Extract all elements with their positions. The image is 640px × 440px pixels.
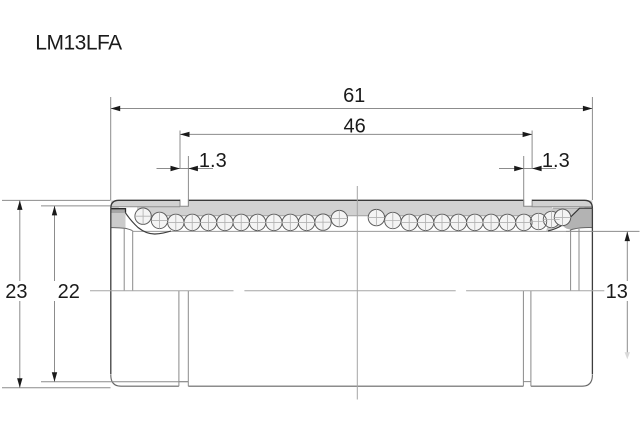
svg-text:LM13LFA: LM13LFA bbox=[35, 32, 122, 55]
svg-text:23: 23 bbox=[5, 281, 27, 303]
svg-text:13: 13 bbox=[606, 281, 628, 303]
svg-text:46: 46 bbox=[343, 115, 365, 137]
svg-text:22: 22 bbox=[58, 281, 80, 303]
svg-text:1.3: 1.3 bbox=[542, 150, 570, 172]
svg-text:61: 61 bbox=[343, 85, 365, 107]
svg-text:1.3: 1.3 bbox=[199, 150, 227, 172]
